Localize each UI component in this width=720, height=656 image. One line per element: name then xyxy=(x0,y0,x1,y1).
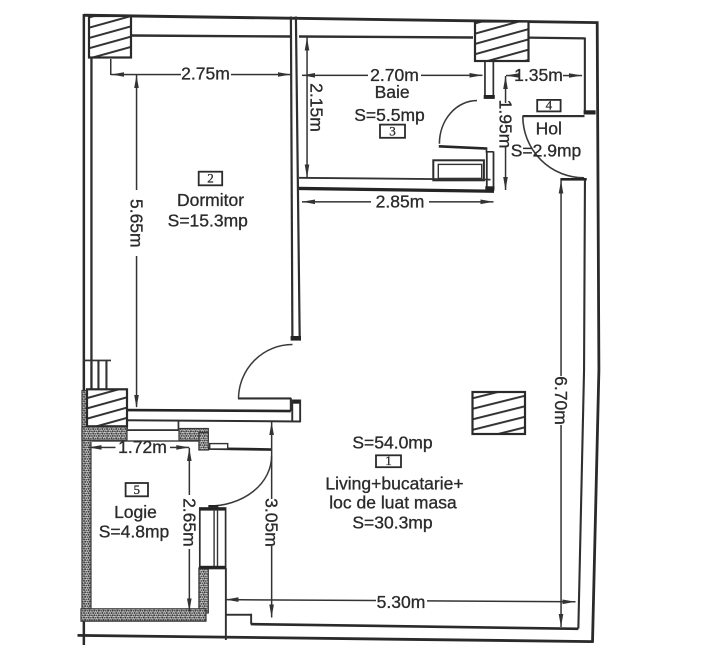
svg-text:2: 2 xyxy=(207,171,214,186)
svg-text:2.65m: 2.65m xyxy=(179,498,199,547)
svg-text:S=30.3mp: S=30.3mp xyxy=(352,512,432,532)
svg-text:S=4.8mp: S=4.8mp xyxy=(99,522,170,542)
svg-text:3: 3 xyxy=(389,123,396,138)
svg-text:5.30m: 5.30m xyxy=(377,592,426,612)
svg-text:S=5.5mp: S=5.5mp xyxy=(354,105,425,125)
svg-text:4: 4 xyxy=(546,97,553,112)
svg-text:3.05m: 3.05m xyxy=(262,498,282,547)
svg-text:1.72m: 1.72m xyxy=(118,437,167,457)
svg-text:2.75m: 2.75m xyxy=(181,63,230,83)
svg-text:1.35m: 1.35m xyxy=(514,65,563,85)
svg-text:S=2.9mp: S=2.9mp xyxy=(511,140,582,160)
svg-text:S=54.0mp: S=54.0mp xyxy=(352,433,432,453)
svg-text:1: 1 xyxy=(385,453,392,468)
svg-text:5.65m: 5.65m xyxy=(127,199,147,248)
svg-text:Living+bucatarie+: Living+bucatarie+ xyxy=(325,473,463,493)
svg-text:2.15m: 2.15m xyxy=(307,83,327,132)
svg-text:2.85m: 2.85m xyxy=(376,191,425,211)
svg-text:5: 5 xyxy=(134,482,141,497)
svg-text:Logie: Logie xyxy=(114,502,157,522)
svg-text:Hol: Hol xyxy=(536,119,562,139)
svg-text:S=15.3mp: S=15.3mp xyxy=(168,211,248,231)
svg-text:loc de luat masa: loc de luat masa xyxy=(329,493,457,513)
svg-text:6.70m: 6.70m xyxy=(551,376,571,425)
svg-text:Baie: Baie xyxy=(375,82,410,102)
svg-text:Dormitor: Dormitor xyxy=(177,190,244,210)
